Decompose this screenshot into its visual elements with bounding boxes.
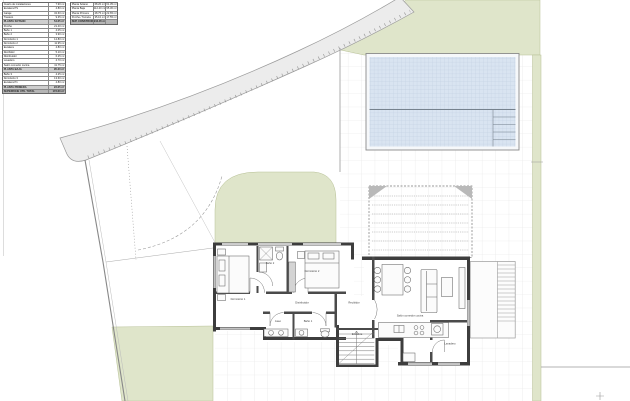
- driveway-division-line-2: [160, 141, 218, 248]
- table-row-value: 6.25 m²: [49, 55, 65, 58]
- tv-sideboard: [459, 268, 465, 309]
- washer: [432, 324, 444, 336]
- table-row-label: Planta Sótano: [71, 3, 94, 6]
- table-row-value-2: [106, 20, 117, 23]
- table-row-label: Salón comedor cocina: [3, 64, 49, 67]
- room-label-lavadero: Lavadero: [444, 342, 456, 346]
- room-label-recibidor: Recibidor: [348, 301, 359, 305]
- room-label-escalera: Escalera: [352, 332, 363, 336]
- dining-set: [374, 265, 410, 296]
- table-row-value-1: 35.10 m²: [94, 16, 107, 19]
- table-row-label: Dormitorio 3: [3, 77, 49, 80]
- table-row-label: PLANTA PRIMERA: [3, 86, 49, 89]
- table-row-label: Baño 2: [3, 33, 49, 36]
- kitchen-counter: [403, 353, 415, 362]
- table-row-value: 41.75 m²: [49, 64, 65, 67]
- table-row-value: 7.90 m²: [49, 3, 65, 6]
- bed-1: [217, 249, 249, 301]
- table-row-value: 4.80 m²: [49, 46, 65, 49]
- table-row-label: Planta Baja: [71, 7, 94, 10]
- coffee-table: [442, 278, 453, 297]
- built-areas-table: Planta Sótano 68.20 m² 61.35 m² Planta B…: [70, 2, 118, 25]
- table-row-label: Porche: [3, 25, 49, 28]
- table-row-value-1: 244.45 m²: [94, 20, 107, 23]
- table-row-label: Planta Primera: [71, 12, 94, 15]
- room-label-salon: Salón comedor cocina: [397, 314, 424, 318]
- table-row-value-2: 61.35 m²: [106, 3, 117, 6]
- surface-areas-table: Cuarto de instalaciones 7.90 m² Escalera…: [2, 2, 66, 94]
- table-row-label: Distribuidor: [3, 55, 49, 58]
- table-row-value: 11.95 m²: [49, 42, 65, 45]
- table-row-label: Escalera P1: [3, 81, 49, 84]
- garden-bottom-left: [112, 326, 213, 401]
- table-row-label: Lavadero: [3, 59, 49, 62]
- table-row-value-2: 22.65 m²: [106, 12, 117, 15]
- deck: [470, 262, 515, 339]
- table-row-value-1: 112.40 m²: [94, 7, 107, 10]
- table-row-label: Baño 1: [3, 29, 49, 32]
- plot-left-boundary-inner: [89, 160, 128, 401]
- driveway-dotted-line: [127, 146, 136, 260]
- room-label-bano-2: Baño 2: [266, 261, 275, 265]
- garden-right-strip: [533, 55, 542, 401]
- table-row-label: SUP. CONSTRUIDA TOTAL: [71, 20, 94, 23]
- table-row-value: 22.65 m²: [49, 86, 65, 89]
- table-row-label: SUPERFICIE ÚTIL TOTAL: [3, 90, 49, 93]
- table-row-value: 4.80 m²: [49, 81, 65, 84]
- room-label-dormitorio-2: Dormitorio 2: [305, 269, 320, 273]
- table-row-label: Dormitorio 2: [3, 42, 49, 45]
- table-row-value-1: 68.20 m²: [94, 3, 107, 6]
- table-row-label: Dormitorio 1: [3, 38, 49, 41]
- table-row-label: Porche / Terraza: [71, 16, 94, 19]
- table-row-value: 172.60 m²: [49, 90, 65, 93]
- table-row-value: 54.65 m²: [49, 20, 65, 23]
- table-row-label: Trastero: [3, 16, 49, 19]
- table-row-value: 4.05 m²: [49, 29, 65, 32]
- table-row-value: 32.60 m²: [49, 12, 65, 15]
- table-row-label: PLANTA SÓTANO: [3, 20, 49, 23]
- table-row-label: Recibidor: [3, 51, 49, 54]
- table-row-value: 95.30 m²: [49, 68, 65, 71]
- garden-middle-blob: [215, 172, 336, 246]
- sofa: [421, 270, 437, 313]
- room-label-bano-1: Baño 1: [304, 319, 313, 323]
- table-row-label: Cuarto de instalaciones: [3, 3, 49, 6]
- table-row-label: Baño 3: [3, 73, 49, 76]
- table-row-value-2: 95.30 m²: [106, 7, 117, 10]
- room-label-distribuidor: Distribuidor: [295, 301, 309, 305]
- table-row-label: Escalera PS: [3, 7, 49, 10]
- room-label-dormitorio-1: Dormitorio 1: [231, 297, 246, 301]
- table-row-label: PLANTA BAJA: [3, 68, 49, 71]
- table-row: SUP. CONSTRUIDA TOTAL 244.45 m²: [71, 20, 117, 23]
- site-plan-drawing: Dormitorio 1 Dormitorio 2 Baño 2 Aseo Ba…: [0, 0, 630, 401]
- table-row-value: 4.25 m²: [49, 73, 65, 76]
- table-row-value-2: 17.55 m²: [106, 16, 117, 19]
- table-row-value-1: 28.75 m²: [94, 12, 107, 15]
- pool: [366, 54, 519, 151]
- car-sweep-dashed-arc: [138, 176, 222, 250]
- table-row: SUPERFICIE ÚTIL TOTAL 172.60 m²: [3, 90, 65, 93]
- table-row-value: 9.35 m²: [49, 16, 65, 19]
- table-row-label: Escalera: [3, 46, 49, 49]
- table-row-value: 4.70 m²: [49, 59, 65, 62]
- table-row-value: 13.60 m²: [49, 77, 65, 80]
- table-row-label: Garaje: [3, 12, 49, 15]
- driveway-division-line: [106, 248, 213, 262]
- table-row-value: 3.90 m²: [49, 33, 65, 36]
- table-row-value: 21.40 m²: [49, 25, 65, 28]
- table-row-value: 5.10 m²: [49, 51, 65, 54]
- table-row-value: 12.80 m²: [49, 38, 65, 41]
- plot-left-boundary: [85, 160, 125, 401]
- survey-cross: [596, 392, 604, 400]
- room-label-aseo: Aseo: [275, 319, 282, 323]
- pool-water-grid: [370, 57, 516, 147]
- table-row-value: 4.80 m²: [49, 7, 65, 10]
